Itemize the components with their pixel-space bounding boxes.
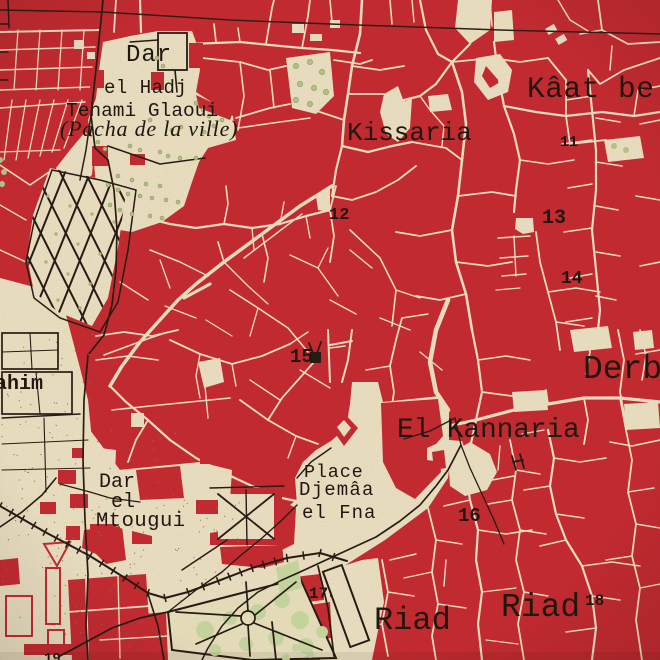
svg-text:el Fna: el Fna xyxy=(302,502,376,524)
svg-text:El Kannaria: El Kannaria xyxy=(397,415,580,446)
svg-text:17: 17 xyxy=(309,585,328,603)
svg-text:el Hadj: el Hadj xyxy=(104,77,187,99)
svg-text:Kissaria: Kissaria xyxy=(347,118,472,148)
svg-text:Derb: Derb xyxy=(583,351,660,388)
svg-text:13: 13 xyxy=(542,207,566,230)
svg-text:18: 18 xyxy=(585,592,604,610)
svg-text:Dar: Dar xyxy=(126,42,172,69)
svg-text:14: 14 xyxy=(561,269,583,289)
svg-text:12: 12 xyxy=(329,206,349,225)
svg-text:19: 19 xyxy=(44,651,61,660)
svg-text:Kâat be: Kâat be xyxy=(527,72,654,106)
svg-text:Riad: Riad xyxy=(374,602,451,639)
svg-text:Mtougui: Mtougui xyxy=(96,510,186,533)
svg-text:11: 11 xyxy=(560,134,578,151)
svg-text:16: 16 xyxy=(458,505,481,527)
svg-text:ahim: ahim xyxy=(0,373,43,396)
svg-text:Djemâa: Djemâa xyxy=(299,479,375,501)
svg-text:15: 15 xyxy=(290,346,313,368)
svg-text:(Pacha de la ville): (Pacha de la ville) xyxy=(60,116,238,141)
svg-text:Riad: Riad xyxy=(501,589,580,626)
